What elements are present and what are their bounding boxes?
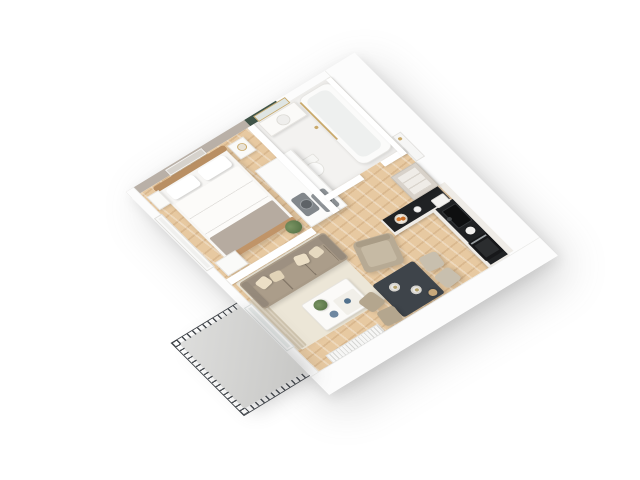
nightstand-lamp (235, 142, 249, 153)
vanity-basin (274, 112, 294, 127)
screenshot-canvas: { "scene": { "type": "3d-isometric-floor… (0, 0, 640, 480)
floor-plan-render (126, 53, 558, 395)
balcony-railing-outer (171, 340, 249, 416)
table-plant (311, 297, 331, 312)
balcony-railing-top (171, 303, 242, 348)
gold-door-handle (397, 137, 402, 141)
decor-tray (328, 309, 341, 319)
balcony-railing-bottom (240, 371, 311, 416)
pampas-vase (427, 288, 440, 298)
